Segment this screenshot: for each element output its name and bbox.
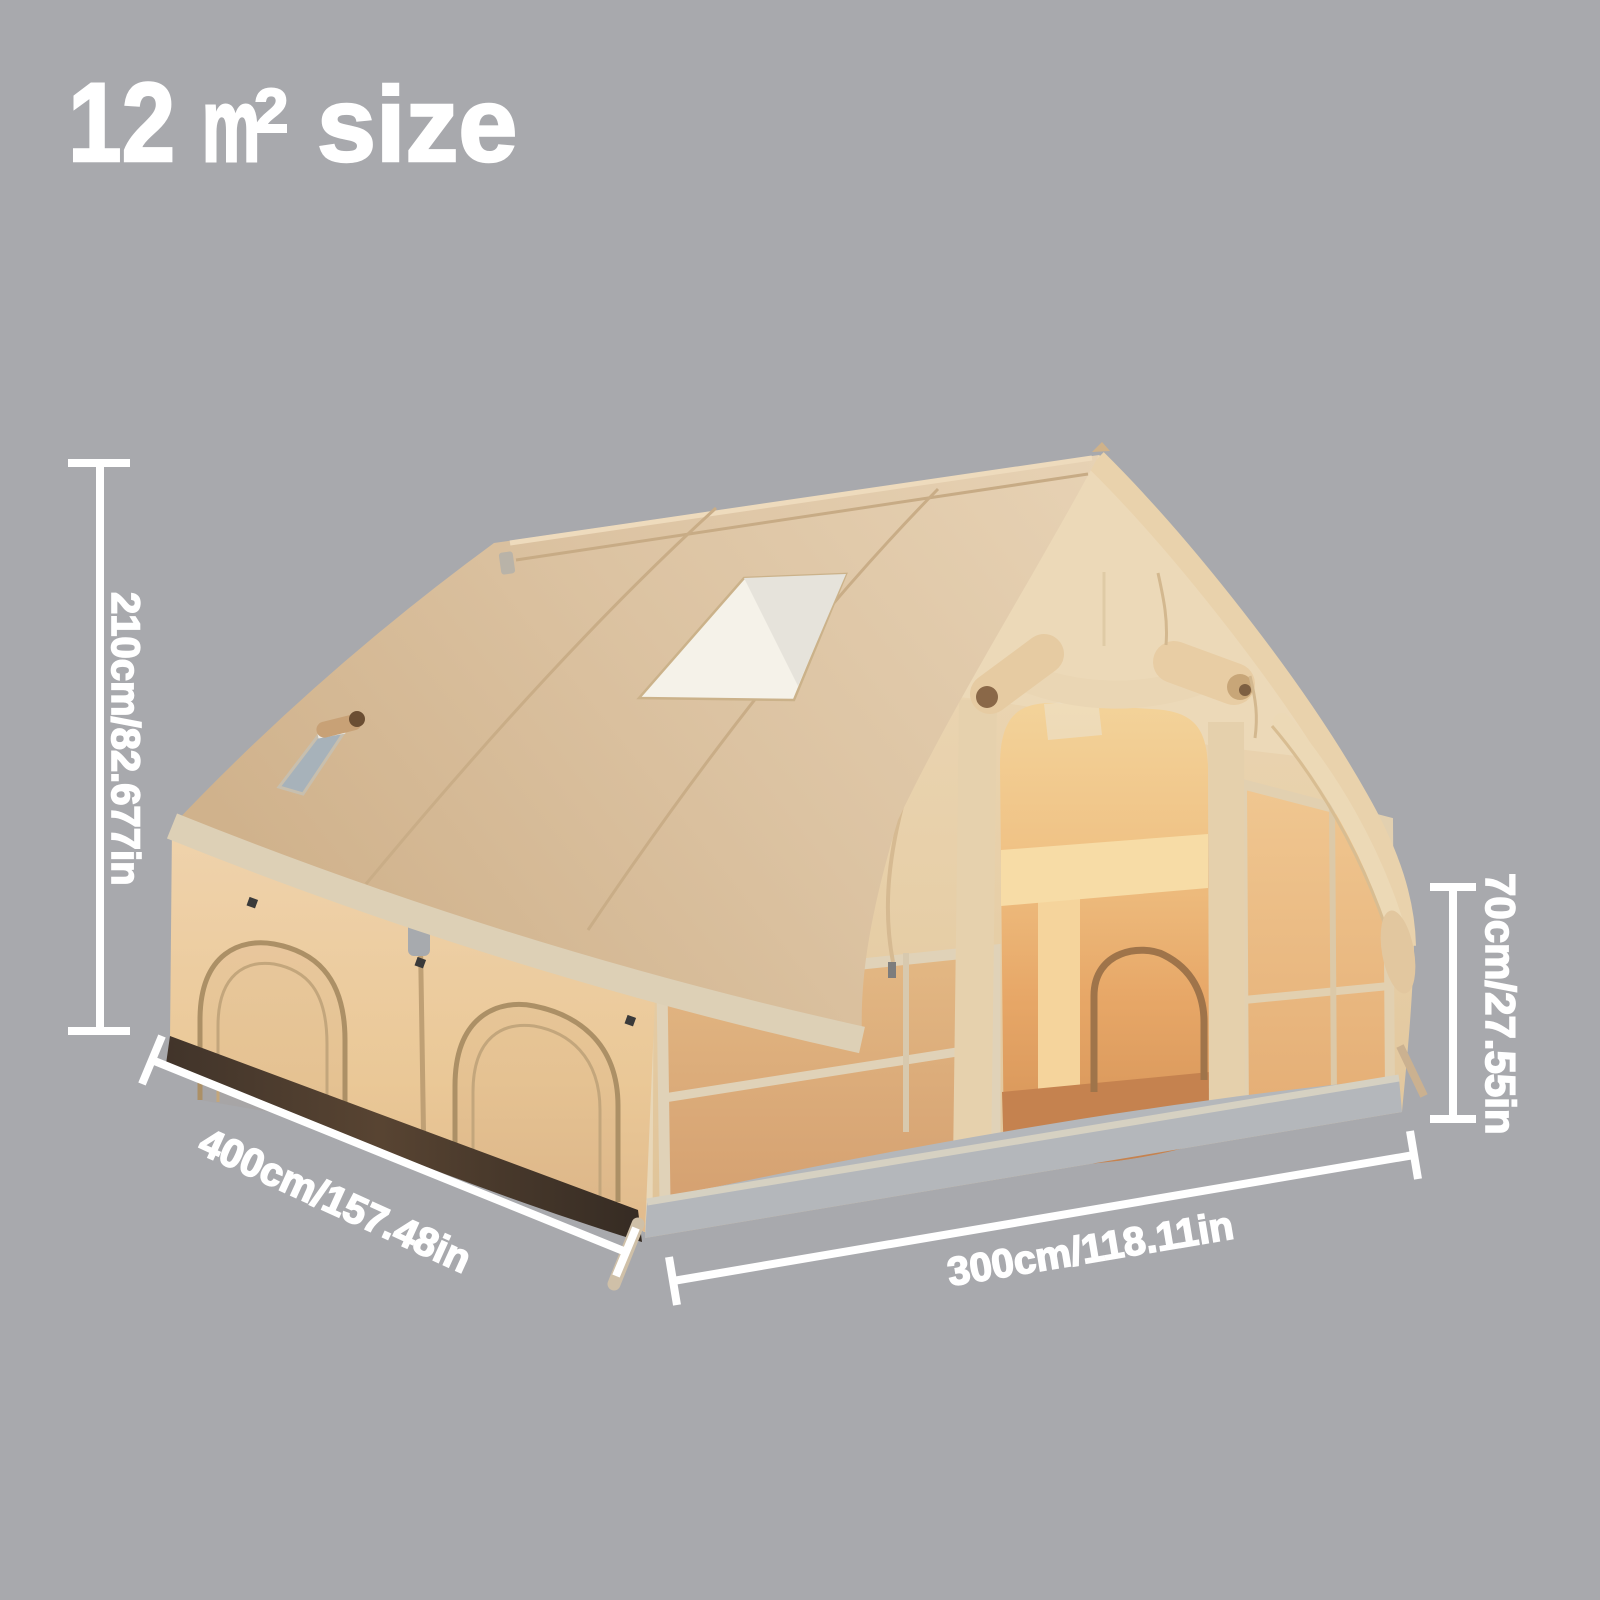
svg-text:210cm/82.677in: 210cm/82.677in [103,592,147,886]
svg-text:70cm/27.55in: 70cm/27.55in [1477,873,1524,1135]
svg-text:300cm/118.11in: 300cm/118.11in [944,1204,1236,1295]
